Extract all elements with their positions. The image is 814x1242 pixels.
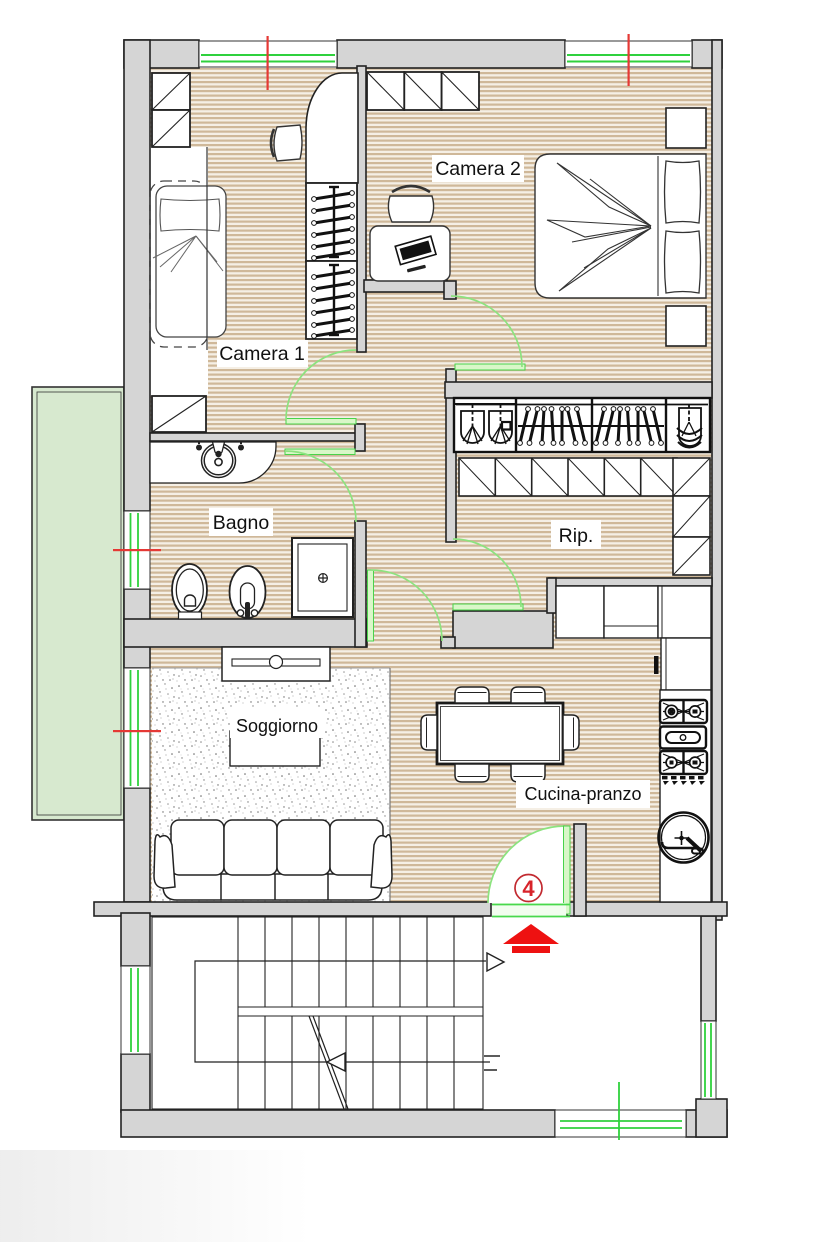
svg-text:Camera 1: Camera 1 [219,343,305,365]
svg-text:Bagno: Bagno [213,512,270,534]
svg-text:Rip.: Rip. [559,525,594,547]
svg-text:Cucina-pranzo: Cucina-pranzo [524,784,641,804]
svg-text:Soggiorno: Soggiorno [236,716,318,736]
svg-text:4: 4 [522,876,535,901]
svg-text:Camera 2: Camera 2 [435,158,521,180]
